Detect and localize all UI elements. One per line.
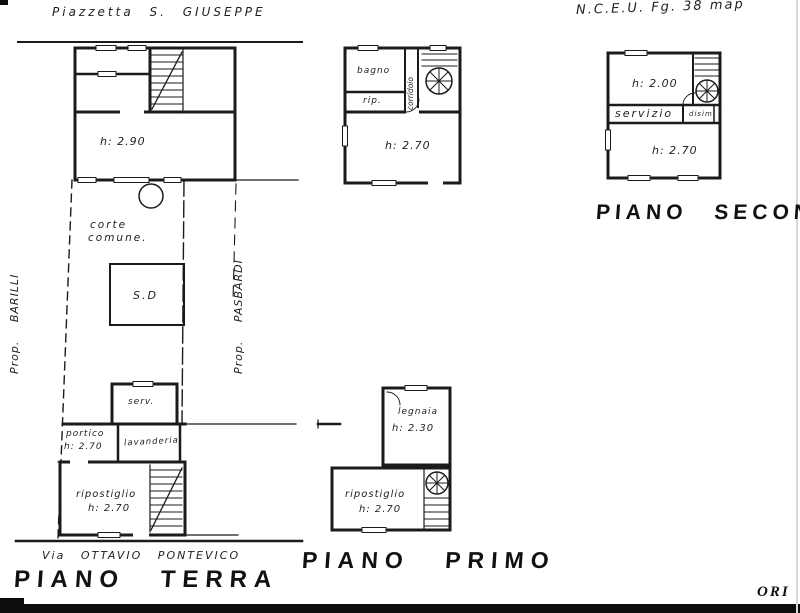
room-height-storage-first: h: 2.70 [359,504,401,515]
room-height-woodshed: h: 2.30 [392,423,434,434]
shed-label: S.D [133,289,158,302]
street-name-bottom: Via OTTAVIO PONTEVICO [42,549,240,562]
courtyard-label-line2: comune. [88,232,148,244]
room-label-woodshed: legnaia [398,407,438,417]
corner-stamp-text: ORI [757,584,790,601]
room-height-attic: h: 2.00 [632,77,678,90]
room-height-ground-main: h: 2.90 [100,135,146,148]
room-label-disimpegno: disim. [689,110,716,118]
floor-plan-sheet: Piazzetta S. GIUSEPPE N.C.E.U. Fg. 38 ma… [0,0,800,613]
ground-floor-upper-block [18,42,302,183]
room-label-storage-first: ripostiglio [345,489,405,500]
ground-floor-lower-block [16,381,302,541]
room-label-bathroom: bagno [357,66,390,76]
well-icon [139,184,163,208]
floor-title-first: PIANO PRIMO [301,547,557,574]
room-label-closet: rip. [363,96,382,106]
floor-title-second: PIANO SECONDO [595,201,800,225]
room-label-service: serv. [128,397,154,407]
room-label-storage-ground: ripostiglio [76,489,136,500]
floor-title-ground: PIANO TERRA [13,566,279,594]
neighbor-owner-right: Prop. PASBARDI [232,259,245,374]
room-height-second-main: h: 2.70 [652,144,698,157]
room-label-corridor: corridoio [406,77,415,110]
courtyard-label-line1: corte [90,219,127,231]
room-height-first-main: h: 2.70 [385,139,431,152]
room-height-storage-ground: h: 2.70 [88,503,130,514]
room-label-servizio: servizio [615,107,673,120]
room-height-portico: h: 2.70 [64,442,103,452]
street-name-top: Piazzetta S. GIUSEPPE [52,5,266,19]
plan-linework [0,0,800,613]
room-label-portico: portico [66,429,104,439]
neighbor-owner-left: Prop. BARILLI [8,274,21,374]
